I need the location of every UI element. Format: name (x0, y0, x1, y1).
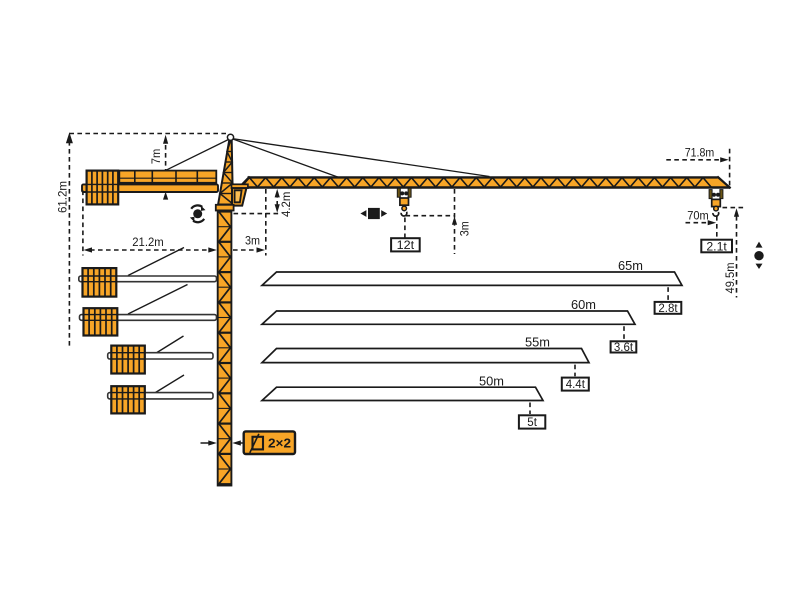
svg-text:12t: 12t (397, 238, 415, 252)
svg-text:3m: 3m (245, 234, 260, 248)
svg-text:55m: 55m (525, 336, 550, 350)
svg-text:49.5m: 49.5m (723, 263, 737, 294)
svg-text:21.2m: 21.2m (132, 235, 164, 249)
svg-text:3m: 3m (458, 221, 472, 236)
svg-text:60m: 60m (571, 298, 596, 312)
svg-text:5t: 5t (527, 417, 537, 429)
svg-text:61.2m: 61.2m (56, 181, 70, 213)
svg-text:7m: 7m (149, 149, 163, 165)
svg-text:70m: 70m (687, 209, 709, 223)
svg-text:3.6t: 3.6t (614, 342, 634, 354)
svg-text:2.8t: 2.8t (658, 303, 678, 315)
svg-text:2×2: 2×2 (268, 437, 291, 451)
svg-text:4.4t: 4.4t (566, 379, 586, 391)
svg-text:50m: 50m (479, 374, 504, 388)
svg-text:4.2m: 4.2m (279, 192, 293, 218)
svg-text:65m: 65m (618, 259, 643, 273)
svg-text:71.8m: 71.8m (685, 146, 715, 160)
svg-text:2.1t: 2.1t (706, 239, 727, 253)
